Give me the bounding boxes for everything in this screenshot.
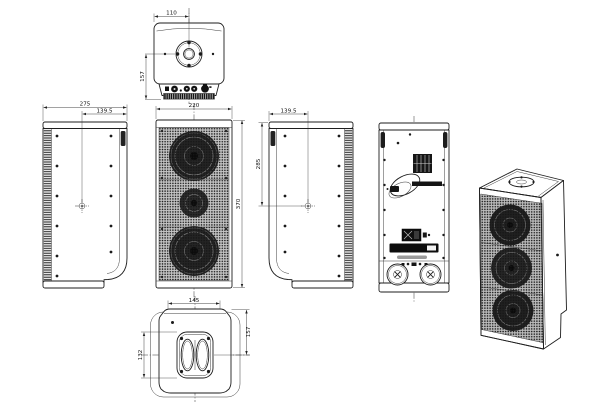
grille-edge-hatch <box>44 129 52 282</box>
front-view: 220 370 <box>156 103 245 300</box>
connector-panel <box>159 84 219 99</box>
rear-body-outline <box>379 130 449 283</box>
dim-label-right-height: 285 <box>256 158 262 169</box>
rear-connector-bar <box>412 182 442 187</box>
flange-screw <box>199 52 202 55</box>
dim-label-top-width: 110 <box>166 11 177 17</box>
side-bottom-cap <box>292 281 353 288</box>
handle-recess <box>177 332 213 378</box>
top-screw <box>212 53 214 55</box>
isometric-view <box>478 169 567 349</box>
rear-view <box>379 116 449 302</box>
pole-cup-right <box>420 264 441 285</box>
pole-cup-left <box>387 264 408 285</box>
flange-screw <box>176 52 179 55</box>
connector-square <box>165 87 169 92</box>
dim-label-right-offset: 139.5 <box>280 108 296 114</box>
grille-edge-hatch <box>345 129 353 282</box>
rear-top-cap <box>379 123 449 130</box>
rear-bottom-cap <box>379 283 449 292</box>
rear-connector <box>390 186 399 192</box>
iso-side-screw <box>556 254 559 257</box>
dim-label-side-depth: 275 <box>80 102 91 108</box>
side-view-right: 139.5 285 <box>256 108 353 288</box>
technical-drawing-canvas: 110 157 275 139.5 <box>0 0 600 403</box>
top-view: 110 157 <box>140 8 224 104</box>
rear-slot <box>121 131 126 146</box>
iso-grille <box>478 192 546 345</box>
rear-handle-slot <box>443 132 447 148</box>
dim-label-front-height: 370 <box>236 198 242 209</box>
vent-bar <box>164 94 215 100</box>
dim-label-bottom-width: 145 <box>189 298 200 304</box>
bottom-view: 145 157 132 <box>138 296 252 402</box>
side-view-left: 275 139.5 <box>43 102 127 288</box>
side-bottom-cap <box>43 281 104 288</box>
dim-label-side-offset: 139.5 <box>96 108 112 114</box>
dim-label-front-width: 220 <box>189 103 200 109</box>
dim-label-bottom-offset: 157 <box>246 326 252 337</box>
flange-screw <box>187 64 190 67</box>
dim-label-top-height: 157 <box>140 71 146 82</box>
heatsink <box>413 154 432 173</box>
side-top-cap <box>269 122 353 129</box>
speaker-technical-drawing: 110 157 275 139.5 <box>0 0 600 403</box>
bottom-screw <box>171 321 174 324</box>
side-top-cap <box>43 122 127 129</box>
rear-handle-slot <box>381 132 385 148</box>
grille <box>159 128 229 281</box>
rear-slot <box>271 131 276 146</box>
dim-label-bottom-recess-height: 132 <box>138 350 144 361</box>
